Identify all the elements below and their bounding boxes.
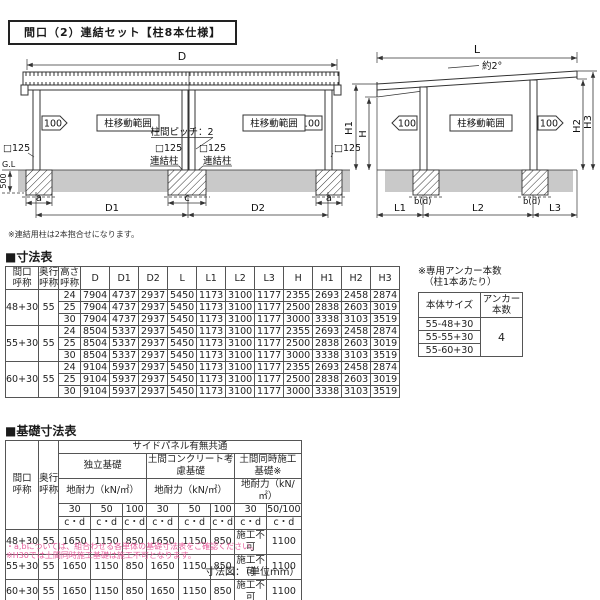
cell: 100: [211, 504, 235, 517]
cell: 5937: [110, 374, 139, 386]
table-row: 55-48+30 4: [419, 318, 523, 331]
cell: 3338: [313, 314, 342, 326]
cell: 48+30: [6, 290, 39, 326]
cell: 1177: [255, 362, 284, 374]
cell: 3100: [226, 362, 255, 374]
cell: 2500: [284, 302, 313, 314]
cell: D: [81, 267, 110, 290]
table-row: 30 8504 5337 2937 5450 1173 3100 1177 30…: [6, 350, 400, 362]
dimension-table: 間口 呼称 奥行 呼称 高さ 呼称 D D1 D2 L L1 L2 L3 H H…: [5, 266, 400, 398]
anchor-table-header-row: 本体サイズ アンカー 本数: [419, 293, 523, 318]
cell: 55: [39, 580, 59, 600]
spec-sheet-page: 間口（2）連結セット【柱8本仕様】 D: [0, 0, 600, 600]
cell: 5450: [168, 362, 197, 374]
svg-text:柱間ピッチ：2: 柱間ピッチ：2: [150, 126, 213, 138]
cell: 高さ 呼称: [59, 267, 81, 290]
diagram-note: ※連結用柱は2本抱合せになります。: [8, 229, 139, 240]
cell: 奥行 呼称: [39, 441, 59, 530]
foundation-header-row: 間口 呼称 奥行 呼称 サイドパネル有無共通: [6, 441, 302, 454]
link-post-label-left: 連結柱: [150, 155, 184, 172]
cell: 土間コンクリート考慮基礎: [147, 454, 235, 479]
cell: 1177: [255, 374, 284, 386]
cell: 50: [179, 504, 211, 517]
cell: 3100: [226, 302, 255, 314]
sq125-left: □125: [3, 143, 34, 157]
cell: 5450: [168, 338, 197, 350]
cell: 1173: [197, 326, 226, 338]
roof-panel: [21, 72, 341, 95]
svg-text:500: 500: [0, 173, 8, 188]
cell: 3100: [226, 338, 255, 350]
cell: 2937: [139, 350, 168, 362]
table-row: 60+30 55 1650 1150 850 1650 1150 850 施工不…: [6, 580, 302, 600]
table-row: 30 7904 4737 2937 5450 1173 3100 1177 30…: [6, 314, 400, 326]
cell: 1173: [197, 374, 226, 386]
table-row: 25 7904 4737 2937 5450 1173 3100 1177 25…: [6, 302, 400, 314]
roof-side: [377, 71, 577, 97]
cell: 5450: [168, 374, 197, 386]
cell: 5937: [110, 386, 139, 398]
cell: 1100: [267, 580, 301, 600]
cell: 1177: [255, 350, 284, 362]
cell: 5450: [168, 386, 197, 398]
cell: 1173: [197, 338, 226, 350]
cell: 3100: [226, 350, 255, 362]
slope-label: 約2°: [448, 60, 502, 72]
cell: 独立基礎: [59, 454, 147, 479]
svg-text:c: c: [184, 193, 190, 204]
cell: H3: [371, 267, 400, 290]
cell: 2458: [342, 362, 371, 374]
dim-table-header-row: 間口 呼称 奥行 呼称 高さ 呼称 D D1 D2 L L1 L2 L3 H H…: [6, 267, 400, 290]
cell: 3019: [371, 338, 400, 350]
unit-note: 寸法図：（単位mm）: [205, 563, 299, 578]
cell: 9104: [81, 386, 110, 398]
cell: D2: [139, 267, 168, 290]
cell: 1100: [267, 530, 301, 555]
cell: H2: [342, 267, 371, 290]
svg-text:D1: D1: [105, 203, 119, 214]
not-constructable-cell: 施工不可: [235, 580, 267, 600]
cell: 1173: [197, 314, 226, 326]
cell: 4737: [110, 302, 139, 314]
cell: 2355: [284, 362, 313, 374]
cell: 3100: [226, 326, 255, 338]
cell: 30: [59, 386, 81, 398]
cell: 2693: [313, 362, 342, 374]
cell: 1173: [197, 362, 226, 374]
cell: 2603: [342, 338, 371, 350]
cell: 25: [59, 374, 81, 386]
cell: 3519: [371, 350, 400, 362]
cell: 8504: [81, 350, 110, 362]
cell: 5450: [168, 350, 197, 362]
cell: 1177: [255, 338, 284, 350]
cell: L: [168, 267, 197, 290]
cell: H: [284, 267, 313, 290]
cell: 2874: [371, 290, 400, 302]
cell: 30: [59, 314, 81, 326]
cell: 25: [59, 338, 81, 350]
cell: 3338: [313, 350, 342, 362]
svg-text:L1: L1: [394, 203, 406, 214]
cell: 55-55+30: [419, 331, 481, 344]
cell: D1: [110, 267, 139, 290]
table-row: 60+30 55 24 9104 5937 2937 5450 1173 310…: [6, 362, 400, 374]
cell: 2937: [139, 362, 168, 374]
svg-text:連結柱: 連結柱: [150, 155, 179, 167]
cell: c・d: [123, 517, 147, 530]
cell: 1177: [255, 290, 284, 302]
cell: 4737: [110, 314, 139, 326]
cell: c・d: [59, 517, 91, 530]
table-row: 48+30 55 24 7904 4737 2937 5450 1173 310…: [6, 290, 400, 302]
cell: 3519: [371, 314, 400, 326]
svg-text:H1: H1: [345, 121, 355, 135]
cell: 2937: [139, 302, 168, 314]
cell: 5337: [110, 326, 139, 338]
cell: 24: [59, 326, 81, 338]
cell: 4737: [110, 290, 139, 302]
cell: 30: [235, 504, 267, 517]
cell: 3519: [371, 386, 400, 398]
cell: 55: [39, 362, 59, 398]
cell: 3103: [342, 350, 371, 362]
cell: 55: [39, 326, 59, 362]
dim-table-heading: ■寸法表: [5, 248, 52, 265]
cell: 2603: [342, 302, 371, 314]
dim-label-d: D: [178, 50, 186, 63]
cell: 1173: [197, 386, 226, 398]
cell: 2500: [284, 374, 313, 386]
cell: c・d: [235, 517, 267, 530]
dim-l: L: [377, 43, 577, 63]
cell: 25: [59, 302, 81, 314]
svg-text:D2: D2: [251, 203, 265, 214]
svg-text:L3: L3: [549, 203, 561, 214]
cell: 2693: [313, 290, 342, 302]
cell: 850: [123, 580, 147, 600]
cell: 9104: [81, 374, 110, 386]
cell: 2937: [139, 338, 168, 350]
cell: 2603: [342, 374, 371, 386]
cell: 2458: [342, 326, 371, 338]
cell: 1150: [179, 580, 211, 600]
cell: 5450: [168, 302, 197, 314]
side-view-diagram: L 約2° H1 H: [345, 40, 600, 232]
cell: 55+30: [6, 326, 39, 362]
cell: 7904: [81, 314, 110, 326]
cell: 5450: [168, 290, 197, 302]
cell: 2937: [139, 326, 168, 338]
cell: c・d: [211, 517, 235, 530]
cell: 2937: [139, 314, 168, 326]
cell: 3100: [226, 290, 255, 302]
cell: 1173: [197, 350, 226, 362]
cell: 1177: [255, 386, 284, 398]
cell: 850: [211, 580, 235, 600]
cell: 2874: [371, 362, 400, 374]
link-post-label-right: 連結柱: [196, 155, 232, 172]
cell: 55-48+30: [419, 318, 481, 331]
svg-text:L2: L2: [472, 203, 484, 214]
cell: アンカー 本数: [481, 293, 523, 318]
cell: 間口 呼称: [6, 441, 39, 530]
sq125-center-right: □125: [199, 143, 226, 154]
cell: 土間同時施工基礎※: [235, 454, 301, 479]
bd-label-right: b(d): [523, 197, 540, 207]
gl-label: G.L: [2, 160, 16, 169]
svg-text:H: H: [358, 130, 369, 138]
cell: 9104: [81, 362, 110, 374]
cell: 3103: [342, 314, 371, 326]
cell: 30: [59, 350, 81, 362]
cell: 4: [481, 318, 523, 357]
cell: 3000: [284, 350, 313, 362]
cell: 1650: [59, 580, 91, 600]
cell: 3000: [284, 314, 313, 326]
svg-text:a: a: [36, 193, 42, 204]
cell: c・d: [147, 517, 179, 530]
cell: 1650: [147, 580, 179, 600]
cell: 24: [59, 290, 81, 302]
svg-text:100: 100: [44, 119, 62, 130]
cell: 1173: [197, 302, 226, 314]
cell: L1: [197, 267, 226, 290]
move-range-box-side: 柱移動範囲: [450, 115, 512, 131]
cell: 1177: [255, 326, 284, 338]
cell: 3103: [342, 386, 371, 398]
svg-text:柱移動範囲: 柱移動範囲: [457, 118, 505, 130]
cell: 1177: [255, 302, 284, 314]
cell: 100: [123, 504, 147, 517]
anchor-note-line1: ※専用アンカー本数: [418, 266, 502, 277]
svg-text:H3: H3: [583, 115, 594, 129]
cell: 3019: [371, 302, 400, 314]
svg-text:約2°: 約2°: [482, 60, 502, 72]
cell: 間口 呼称: [6, 267, 39, 290]
cell: 3019: [371, 374, 400, 386]
svg-text:a: a: [326, 193, 332, 204]
cell: c・d: [91, 517, 123, 530]
dim-d: D: [27, 50, 337, 70]
cell: 50/100: [267, 504, 301, 517]
cell: 2838: [313, 374, 342, 386]
cell: 3338: [313, 386, 342, 398]
cell: 3100: [226, 314, 255, 326]
svg-text:柱移動範囲: 柱移動範囲: [250, 118, 298, 130]
cell: 1173: [197, 290, 226, 302]
svg-text:100: 100: [540, 119, 558, 130]
cell: 5337: [110, 338, 139, 350]
cell: 2874: [371, 326, 400, 338]
table-row: 55+30 55 24 8504 5337 2937 5450 1173 310…: [6, 326, 400, 338]
cell: 2838: [313, 302, 342, 314]
cell: c・d: [179, 517, 211, 530]
cell: 奥行 呼称: [39, 267, 59, 290]
cell: 2355: [284, 326, 313, 338]
cell: 5450: [168, 326, 197, 338]
cell: 50: [91, 504, 123, 517]
cell: c・d: [267, 517, 301, 530]
cell: L2: [226, 267, 255, 290]
cell: 2838: [313, 338, 342, 350]
table-row: 25 8504 5337 2937 5450 1173 3100 1177 25…: [6, 338, 400, 350]
sq125-center-left: □125: [155, 143, 182, 154]
post-adjust-arrow-side-right: 100: [538, 116, 563, 130]
cell: 1150: [91, 580, 123, 600]
front-view-diagram: D 100 100 柱移動範囲: [0, 40, 360, 232]
post-adjust-arrow-left: 100: [42, 116, 67, 130]
svg-text:L: L: [474, 43, 481, 56]
table-row: 25 9104 5937 2937 5450 1173 3100 1177 25…: [6, 374, 400, 386]
cell: 7904: [81, 302, 110, 314]
move-range-box-right: 柱移動範囲: [243, 115, 305, 131]
cell: 5450: [168, 314, 197, 326]
cell: 8504: [81, 326, 110, 338]
foundation-table-heading: ■基礎寸法表: [5, 422, 76, 439]
foundation-note-2: ※H30では土間同時施工基礎は施工不可となります。: [6, 550, 196, 561]
cell: 3000: [284, 386, 313, 398]
svg-text:H2: H2: [572, 119, 583, 133]
cell: 2458: [342, 290, 371, 302]
cell: 地耐力（kN/㎡）: [147, 479, 235, 504]
cell: 30: [147, 504, 179, 517]
cell: H1: [313, 267, 342, 290]
cell: 2937: [139, 386, 168, 398]
cell: 2937: [139, 290, 168, 302]
cell: 5337: [110, 350, 139, 362]
cell: 地耐力（kN/㎡）: [235, 479, 301, 504]
cell: L3: [255, 267, 284, 290]
post-adjust-arrow-side-left: 100: [392, 116, 417, 130]
cell: 1177: [255, 314, 284, 326]
cell: 2693: [313, 326, 342, 338]
svg-text:柱移動範囲: 柱移動範囲: [104, 118, 152, 130]
cell: 3100: [226, 386, 255, 398]
cell: 30: [59, 504, 91, 517]
anchor-note-line2: （柱1本あたり）: [424, 277, 497, 288]
dim-d1-d2: D1 D2: [36, 192, 328, 218]
cell: 24: [59, 362, 81, 374]
svg-text:□125: □125: [3, 143, 30, 154]
cell: 5937: [110, 362, 139, 374]
cell: 2355: [284, 290, 313, 302]
cell: 8504: [81, 338, 110, 350]
cell: 本体サイズ: [419, 293, 481, 318]
table-row: 30 9104 5937 2937 5450 1173 3100 1177 30…: [6, 386, 400, 398]
cell: 60+30: [6, 362, 39, 398]
cell: 60+30: [6, 580, 39, 600]
anchor-table: 本体サイズ アンカー 本数 55-48+30 4 55-55+30 55-60+…: [418, 292, 523, 357]
cell: 55: [39, 290, 59, 326]
cell: 地耐力（kN/㎡）: [59, 479, 147, 504]
cell: 55-60+30: [419, 344, 481, 357]
cell: 2937: [139, 374, 168, 386]
cell: 3100: [226, 374, 255, 386]
svg-text:100: 100: [398, 119, 416, 130]
cell: 2500: [284, 338, 313, 350]
cell: 7904: [81, 290, 110, 302]
cell: サイドパネル有無共通: [59, 441, 301, 454]
dim-h: H: [358, 97, 377, 170]
svg-text:連結柱: 連結柱: [203, 155, 232, 167]
